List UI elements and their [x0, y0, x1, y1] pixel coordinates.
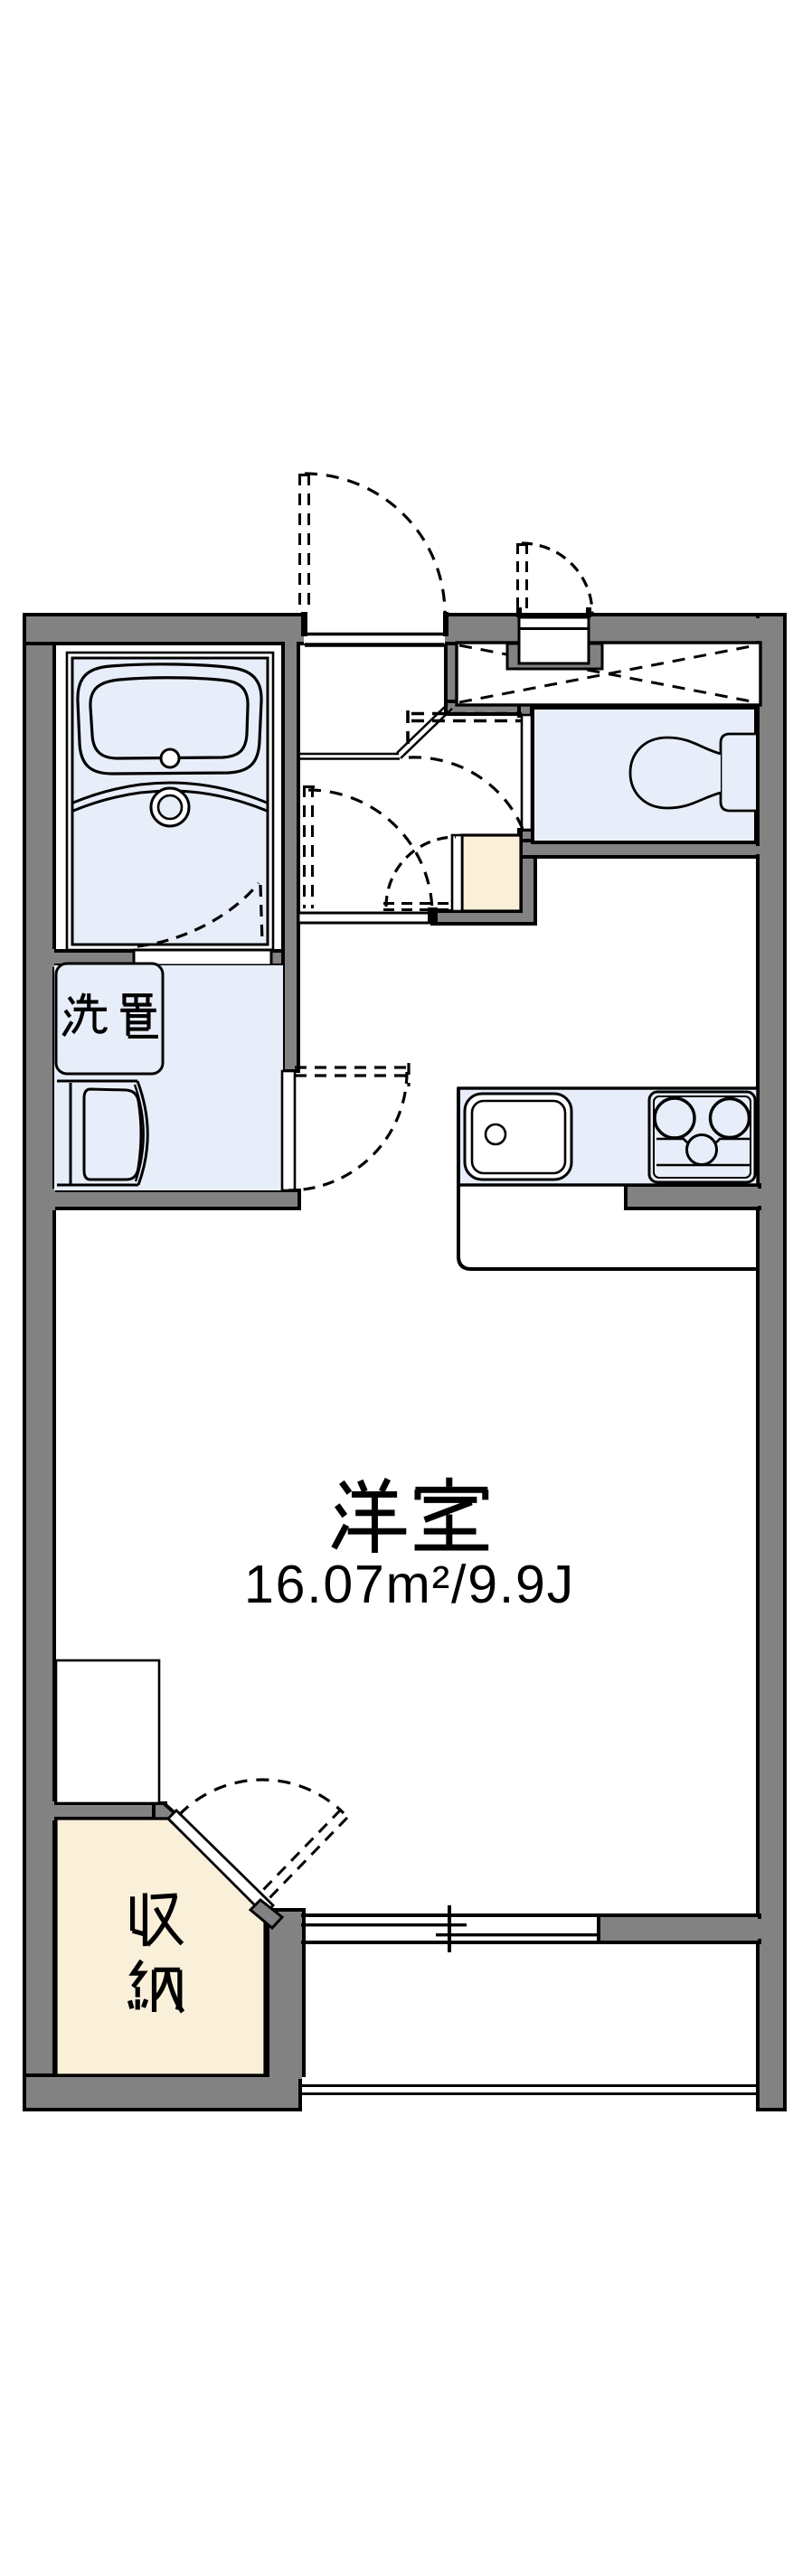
svg-text:16.07m²/9.9J: 16.07m²/9.9J	[244, 1555, 575, 1614]
